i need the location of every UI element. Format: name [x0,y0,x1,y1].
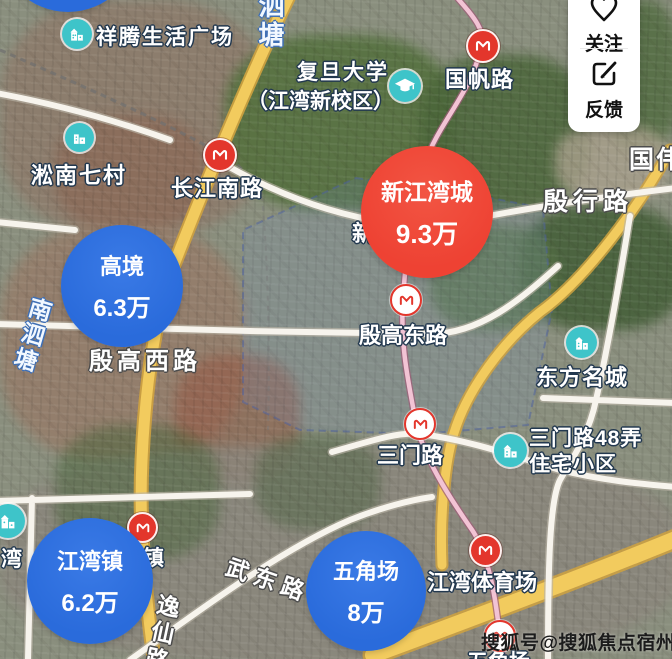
building-icon [65,123,94,152]
poi-label-xiangteng: 祥腾生活广场 [96,21,234,51]
station-label-yingaodonglu: 殷高东路 [359,318,447,350]
poi-label-fudan-line2: （江湾新校区） [247,85,394,115]
map-canvas[interactable]: 泗塘 南泗塘 殷行路 殷高西路 武东路 逸仙路 国伟路 祥腾生活广场 淞南七村 … [0,0,672,659]
metro-station-icon [390,284,422,316]
follow-label: 关注 [585,29,623,56]
building-icon [566,327,597,358]
poi-label-songnanqicun: 淞南七村 [31,158,127,190]
metro-station-icon [469,534,502,567]
bubble-price: 8万 [347,593,384,628]
road-label-guoweilu: 国伟路 [629,140,672,176]
price-bubble-jiangwanzhen[interactable]: 江湾镇 6.2万 [27,518,153,644]
poi-label-dongfangmingcheng: 东方名城 [536,360,628,392]
feedback-button[interactable]: 反馈 [568,58,640,122]
edit-icon [589,58,619,93]
metro-station-icon [203,138,237,172]
bubble-area-name: 新江湾城 [381,173,473,207]
station-label-sanmenlu: 三门路 [377,438,443,470]
bubble-price: 6.2万 [61,583,118,618]
bubble-price: 6.3万 [93,288,150,323]
building-icon [494,434,527,467]
feedback-label: 反馈 [585,95,623,122]
bubble-area-name: 江湾镇 [57,544,123,576]
building-icon [62,19,92,49]
bubble-area-name: 五角场 [333,554,399,586]
station-label-changjiangnanlu: 长江南路 [171,171,263,203]
heart-icon [589,0,619,27]
station-label-guofanlu: 国帆路 [445,62,514,94]
action-panel: 关注 反馈 [568,0,640,132]
station-label-jiangwantiyuchang: 江湾体育场 [427,565,537,597]
road-label-yinhanglu: 殷行路 [543,182,633,218]
metro-station-icon [466,29,500,63]
metro-station-icon [404,408,436,440]
poi-label-wan-fragment: 湾 [1,543,22,573]
poi-label-sanmenlu48-line2: 住宅小区 [529,448,617,478]
watermark: 搜狐号@搜狐焦点宿州站 [481,628,672,655]
divider [580,48,628,49]
bubble-area-name: 高境 [100,249,144,281]
price-bubble-wujiaochang[interactable]: 五角场 8万 [306,531,426,651]
road-label-yingaoxilu: 殷高西路 [89,341,201,376]
water-label-sitang: 泗塘 [252,0,289,50]
bubble-price: 9.3万 [396,214,458,251]
price-bubble-gaojing[interactable]: 高境 6.3万 [61,225,183,347]
poi-label-fudan-line1: 复旦大学 [297,56,389,86]
price-bubble-xinjiangwancheng[interactable]: 新江湾城 9.3万 [361,146,493,278]
